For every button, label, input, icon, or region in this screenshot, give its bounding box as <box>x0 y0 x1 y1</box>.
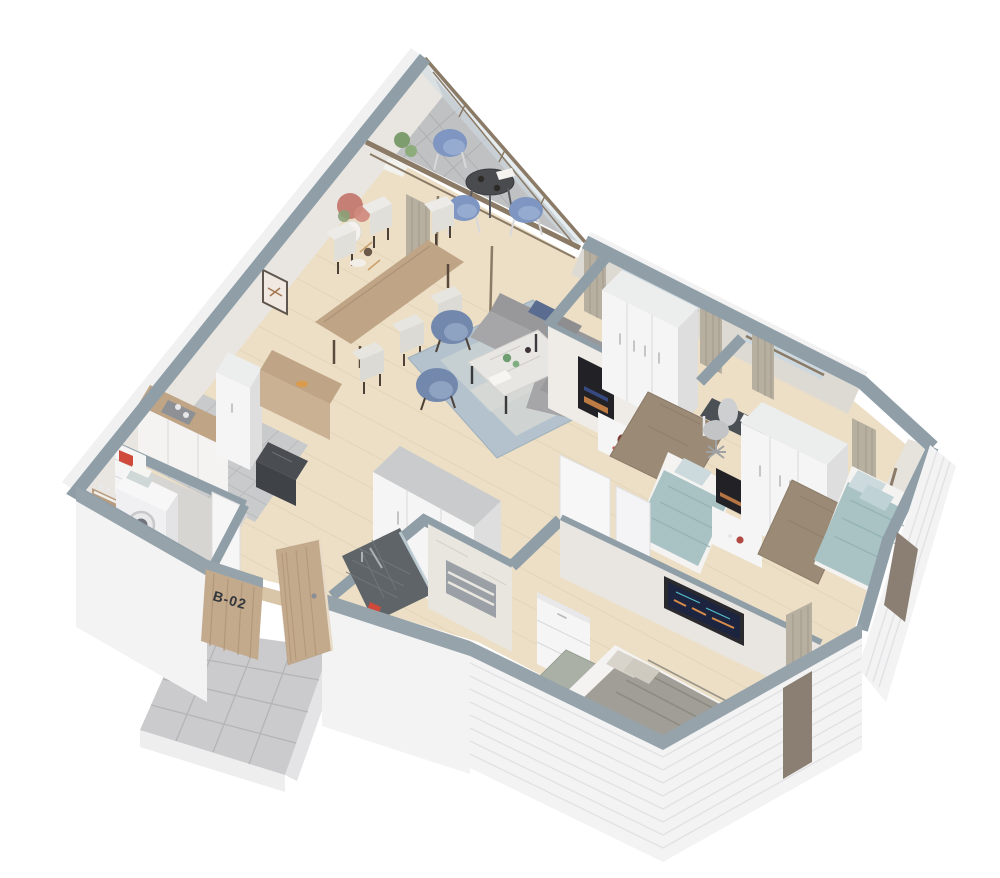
kitchen-tall-cabinet <box>216 352 262 470</box>
floor-plan-3d: B-02 <box>0 0 1000 878</box>
floor-plan-scene: B-02 <box>0 0 1000 878</box>
